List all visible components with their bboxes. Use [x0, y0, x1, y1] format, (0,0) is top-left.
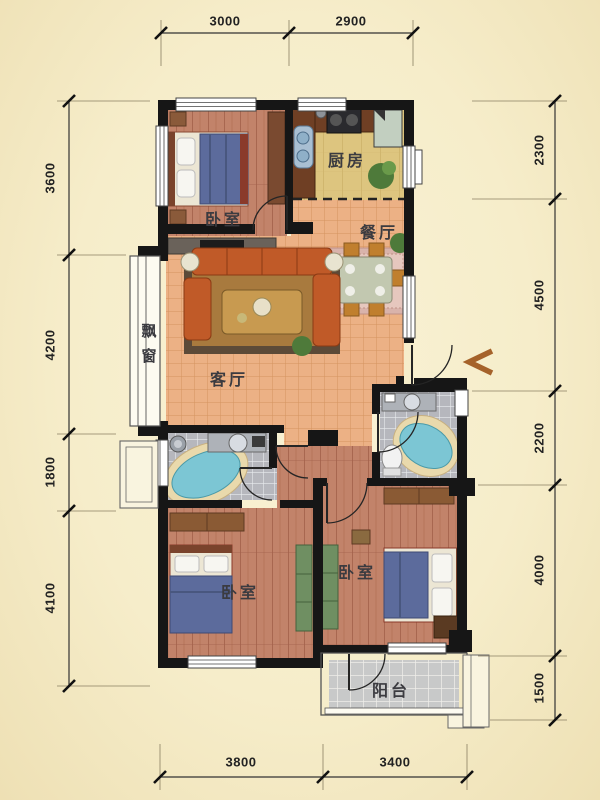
room-label-kitchen: 厨房	[328, 147, 366, 171]
dim-top-3000: 3000	[210, 14, 241, 29]
side-platform	[120, 441, 158, 508]
dim-left-4100: 4100	[43, 583, 58, 614]
floorplan-graphic	[0, 0, 600, 800]
dim-bottom-3800: 3800	[226, 755, 257, 770]
dim-right-4000: 4000	[532, 555, 547, 586]
floorplan-page: 3000 2900 3800 3400 3600 4200 1800 4100 …	[0, 0, 600, 800]
dim-top-2900: 2900	[336, 14, 367, 29]
dim-bottom-3400: 3400	[380, 755, 411, 770]
dim-left-1800: 1800	[43, 457, 58, 488]
room-label-bay-window: 飘窗	[138, 323, 159, 373]
dim-left-3600: 3600	[43, 163, 58, 194]
living-set	[168, 238, 343, 356]
room-label-balcony: 阳台	[372, 677, 410, 701]
room-label-living: 客厅	[210, 366, 248, 390]
dim-right-2200: 2200	[532, 423, 547, 454]
room-label-bedroom-bottom-left: 卧室	[221, 579, 259, 603]
entry-arrow-icon	[469, 351, 492, 373]
dim-left-4200: 4200	[43, 330, 58, 361]
dim-right-4500: 4500	[532, 280, 547, 311]
dim-right-2300: 2300	[532, 135, 547, 166]
room-label-dining: 餐厅	[360, 219, 398, 243]
room-label-bedroom-bottom-right: 卧室	[338, 559, 376, 583]
wardrobe-top-bedroom	[268, 112, 285, 204]
room-label-bedroom-top: 卧室	[205, 206, 243, 230]
dim-right-1500: 1500	[532, 673, 547, 704]
